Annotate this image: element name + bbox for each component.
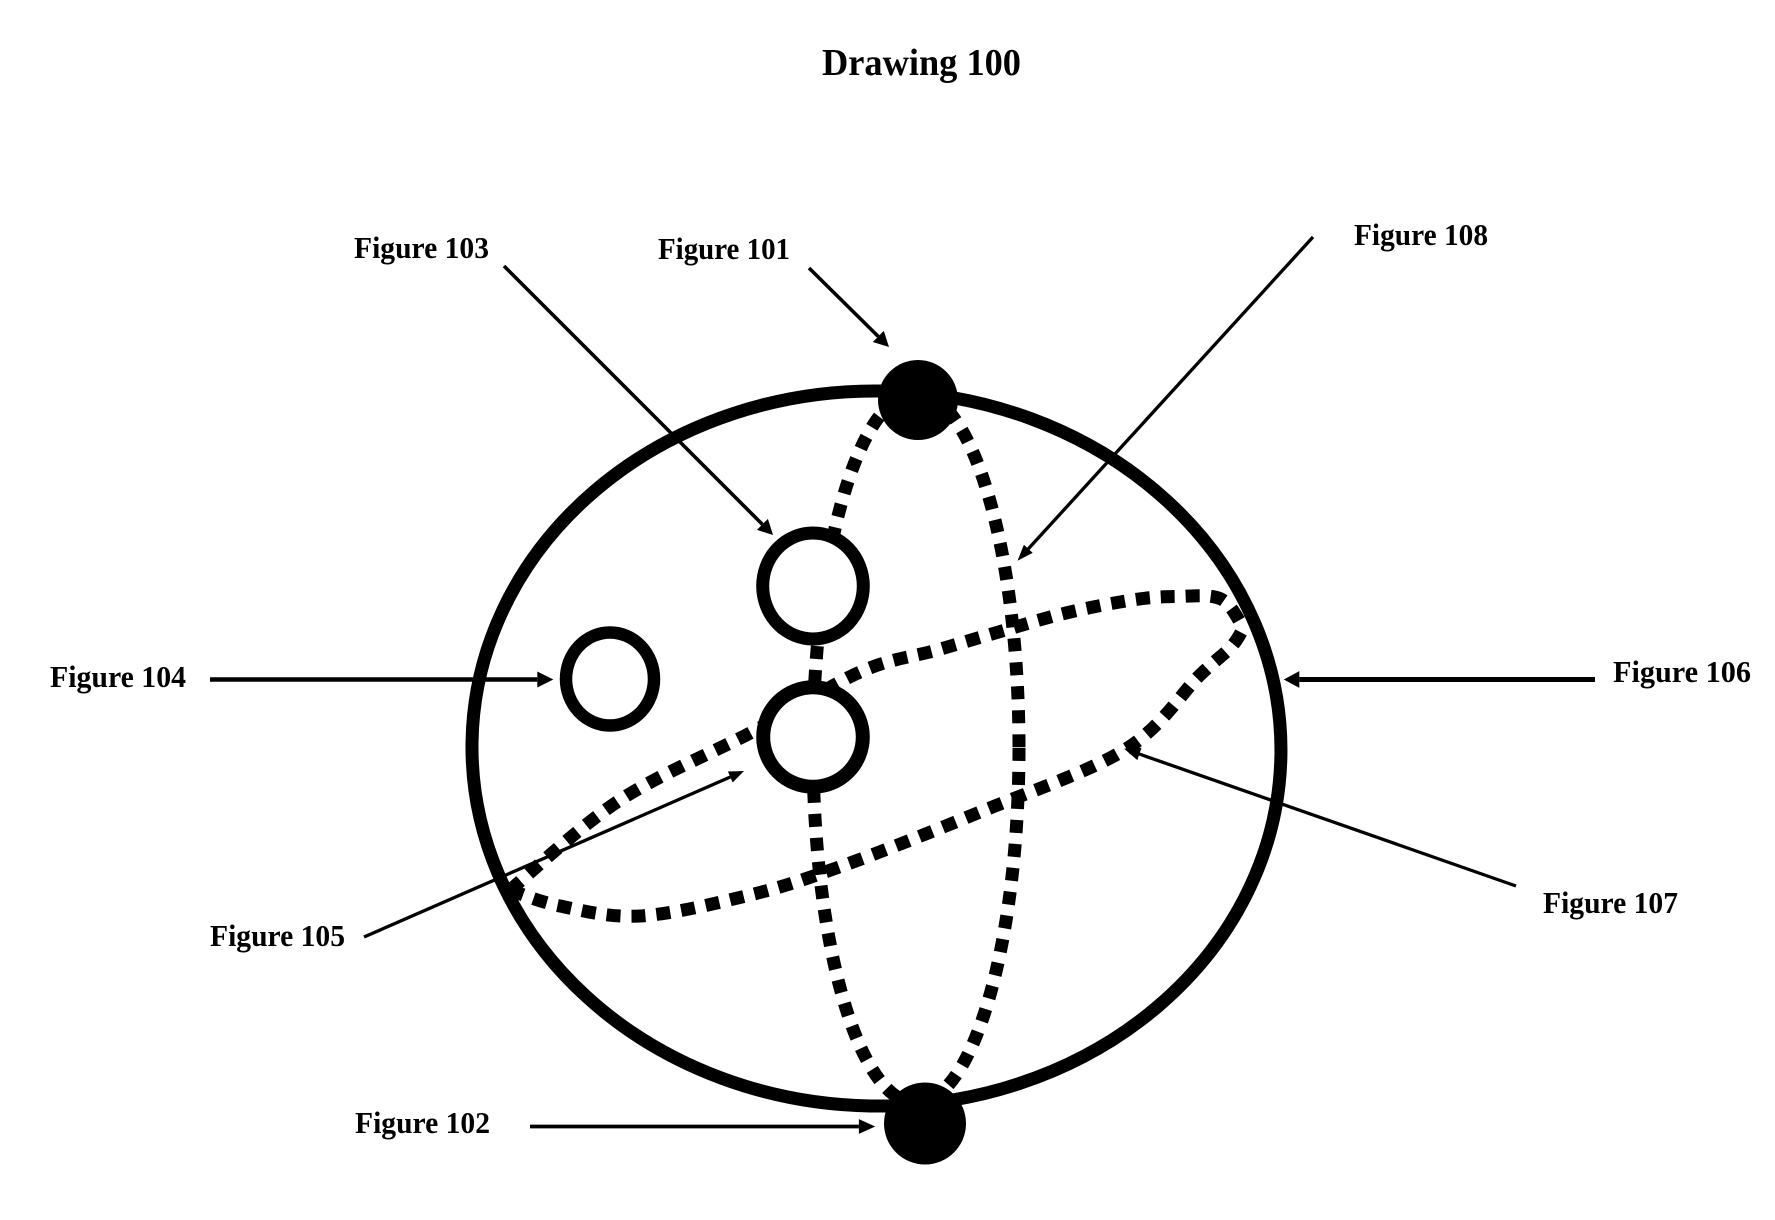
svg-text:Figure 102: Figure 102 xyxy=(355,1105,490,1140)
svg-text:Figure 103: Figure 103 xyxy=(354,230,489,265)
svg-text:Figure 104: Figure 104 xyxy=(50,659,186,694)
svg-text:Figure 106: Figure 106 xyxy=(1613,654,1751,689)
svg-text:Figure 105: Figure 105 xyxy=(210,918,345,953)
svg-text:Drawing 100: Drawing 100 xyxy=(822,42,1021,84)
svg-text:Figure 107: Figure 107 xyxy=(1543,885,1678,920)
svg-text:Figure 108: Figure 108 xyxy=(1354,217,1488,252)
svg-text:Figure 101: Figure 101 xyxy=(658,231,790,266)
